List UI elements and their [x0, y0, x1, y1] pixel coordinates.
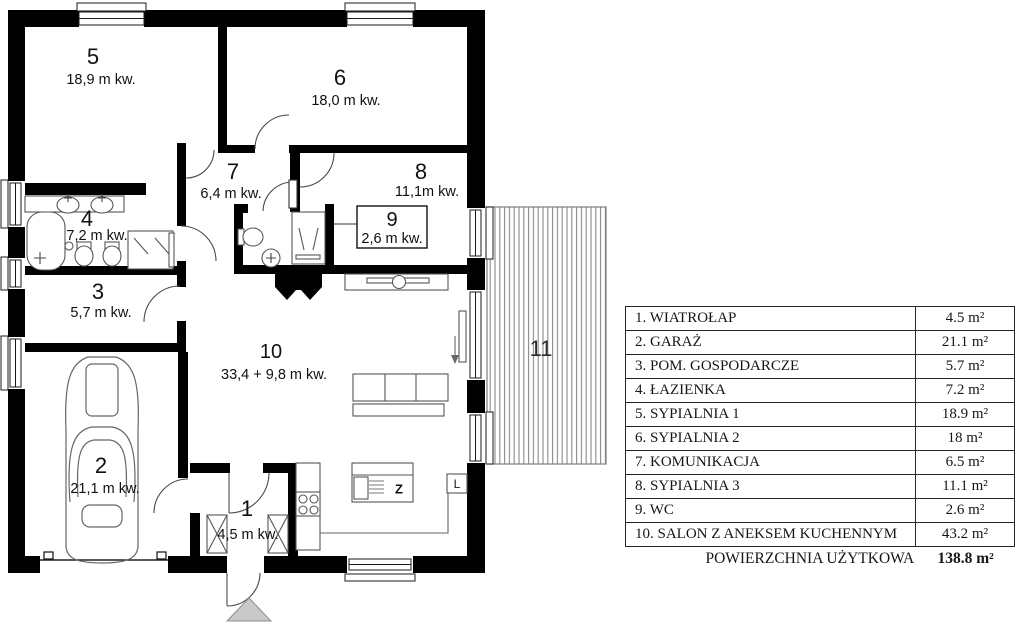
window-room6: [345, 3, 415, 27]
entrance-door-arc: [227, 573, 260, 606]
slide-direction-arrow: [451, 336, 459, 364]
legend: 1. WIATROŁAP4.5 m² 2. GARAŻ21.1 m² 3. PO…: [625, 306, 1015, 568]
legend-room-name: 1. WIATROŁAP: [626, 307, 916, 331]
room-9-area: 2,6 m kw.: [361, 232, 422, 247]
legend-room-area: 5.7 m²: [916, 355, 1015, 379]
kitchen-sink: [354, 477, 368, 499]
room-6-number: 6: [334, 67, 346, 89]
room-8-number: 8: [415, 161, 427, 183]
terrace-door: [467, 290, 485, 380]
door-room8: [300, 153, 334, 187]
legend-room-area: 4.5 m²: [916, 307, 1015, 331]
legend-room-area: 18.9 m²: [916, 403, 1015, 427]
window-room5: [77, 3, 146, 27]
entrance-arrow: [227, 598, 271, 621]
legend-row: 4. ŁAZIENKA7.2 m²: [626, 379, 1015, 403]
salon-furniture: [345, 274, 466, 416]
legend-room-area: 6.5 m²: [916, 451, 1015, 475]
window-room8: [467, 207, 493, 259]
legend-room-name: 10. SALON Z ANEKSEM KUCHENNYM: [626, 523, 916, 547]
legend-row: 8. SYPIALNIA 311.1 m²: [626, 475, 1015, 499]
window-salon-bottom: [345, 556, 415, 581]
door-room5: [186, 150, 214, 178]
room-2-area: 21,1 m kw.: [70, 482, 139, 497]
legend-table: 1. WIATROŁAP4.5 m² 2. GARAŻ21.1 m² 3. PO…: [625, 306, 1015, 547]
room-9-number: 9: [386, 210, 397, 230]
legend-row: 10. SALON Z ANEKSEM KUCHENNYM43.2 m²: [626, 523, 1015, 547]
room-5-number: 5: [87, 46, 99, 68]
legend-row: 1. WIATROŁAP4.5 m²: [626, 307, 1015, 331]
door-bathroom: [181, 226, 216, 261]
room-1-number: 1: [241, 498, 253, 520]
sink-label: Z: [395, 483, 403, 496]
room-4-area: 7,2 m kw.: [66, 229, 127, 244]
door-wc-leaf: [289, 180, 297, 208]
fridge-label: L: [454, 478, 461, 490]
legend-room-area: 11.1 m²: [916, 475, 1015, 499]
legend-room-name: 6. SYPIALNIA 2: [626, 427, 916, 451]
wall-openings: [40, 552, 264, 573]
total-area-label: POWIERZCHNIA UŻYTKOWA: [625, 550, 916, 568]
window-salon-right: [467, 412, 493, 464]
legend-room-name: 5. SYPIALNIA 1: [626, 403, 916, 427]
sofa: [353, 374, 448, 401]
terrace-number: 11: [530, 338, 553, 360]
door-room6: [255, 115, 289, 149]
room-10-area: 33,4 + 9,8 m kw.: [221, 368, 327, 383]
window-garage: [1, 336, 25, 390]
legend-room-name: 4. ŁAZIENKA: [626, 379, 916, 403]
kitchen-fixtures: [296, 463, 467, 550]
sliding-panel: [459, 311, 466, 362]
legend-row: 7. KOMUNIKACJA6.5 m²: [626, 451, 1015, 475]
legend-room-name: 7. KOMUNIKACJA: [626, 451, 916, 475]
window-bathroom: [1, 180, 25, 228]
room-3-number: 3: [92, 281, 104, 303]
legend-room-area: 21.1 m²: [916, 331, 1015, 355]
room-5-area: 18,9 m kw.: [66, 73, 135, 88]
floorplan-page: 5 18,9 m kw. 6 18,0 m kw. 7 6,4 m kw. 8 …: [0, 0, 1024, 636]
room-4-number: 4: [81, 208, 93, 230]
room-10-number: 10: [260, 342, 282, 362]
room-2-number: 2: [95, 455, 107, 477]
legend-room-name: 3. POM. GOSPODARCZE: [626, 355, 916, 379]
legend-room-area: 7.2 m²: [916, 379, 1015, 403]
room-1-area: 4,5 m kw.: [217, 528, 278, 543]
room-7-number: 7: [227, 161, 239, 183]
door-hall-garage: [154, 479, 188, 513]
door-room3: [144, 286, 180, 322]
legend-room-name: 2. GARAŻ: [626, 331, 916, 355]
legend-row: 6. SYPIALNIA 218 m²: [626, 427, 1015, 451]
window-room3: [1, 257, 25, 290]
legend-room-name: 9. WC: [626, 499, 916, 523]
bathtub: [27, 212, 65, 270]
room-3-area: 5,7 m kw.: [70, 306, 131, 321]
legend-room-area: 18 m²: [916, 427, 1015, 451]
room-6-area: 18,0 m kw.: [311, 94, 380, 109]
legend-row: 9. WC2.6 m²: [626, 499, 1015, 523]
room-7-area: 6,4 m kw.: [200, 187, 261, 202]
washing-machine: [128, 231, 173, 269]
toilet: [75, 246, 93, 266]
bidet: [103, 246, 121, 266]
legend-room-area: 2.6 m²: [916, 499, 1015, 523]
legend-row: 5. SYPIALNIA 118.9 m²: [626, 403, 1015, 427]
room-8-area: 11,1m kw.: [395, 185, 459, 200]
coffee-table: [353, 404, 444, 416]
legend-row: 2. GARAŻ21.1 m²: [626, 331, 1015, 355]
chimney: [275, 274, 322, 300]
legend-room-area: 43.2 m²: [916, 523, 1015, 547]
wc-toilet: [243, 228, 263, 246]
legend-room-name: 8. SYPIALNIA 3: [626, 475, 916, 499]
legend-row: 3. POM. GOSPODARCZE5.7 m²: [626, 355, 1015, 379]
total-area-value: 138.8 m²: [916, 550, 1015, 568]
legend-footer: POWIERZCHNIA UŻYTKOWA 138.8 m²: [625, 550, 1015, 568]
